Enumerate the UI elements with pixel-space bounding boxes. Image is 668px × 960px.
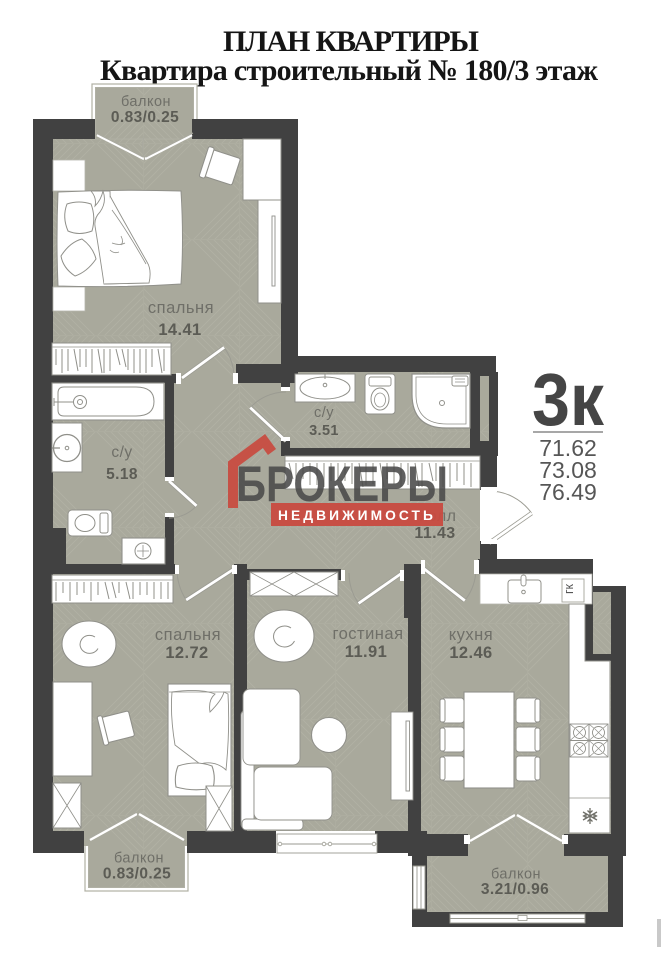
svg-text:балкон: балкон [121,94,171,110]
svg-text:гостиная: гостиная [332,625,403,643]
svg-text:с/у: с/у [111,444,132,461]
svg-text:11.91: 11.91 [345,643,387,661]
svg-text:3.51: 3.51 [309,423,339,439]
svg-text:3.21/0.96: 3.21/0.96 [481,881,549,898]
svg-text:спальня: спальня [155,626,221,644]
svg-text:14.41: 14.41 [158,321,201,339]
svg-text:5.18: 5.18 [106,466,138,483]
svg-text:11.43: 11.43 [414,525,455,542]
svg-text:балкон: балкон [114,851,164,867]
svg-text:кухня: кухня [449,626,493,644]
svg-text:12.72: 12.72 [165,644,208,662]
svg-text:спальня: спальня [148,299,214,317]
svg-text:НЕДВИЖИМОСТЬ: НЕДВИЖИМОСТЬ [278,508,436,523]
svg-text:76.49: 76.49 [539,479,597,505]
svg-text:гк: гк [562,583,576,594]
svg-text:с/у: с/у [314,405,334,421]
svg-text:Квартира строительный № 180/3: Квартира строительный № 180/3 этаж [100,54,598,87]
svg-text:0.83/0.25: 0.83/0.25 [103,866,171,883]
svg-text:12.46: 12.46 [449,644,492,662]
svg-text:3к: 3к [532,358,605,441]
svg-text:0.83/0.25: 0.83/0.25 [111,109,179,126]
